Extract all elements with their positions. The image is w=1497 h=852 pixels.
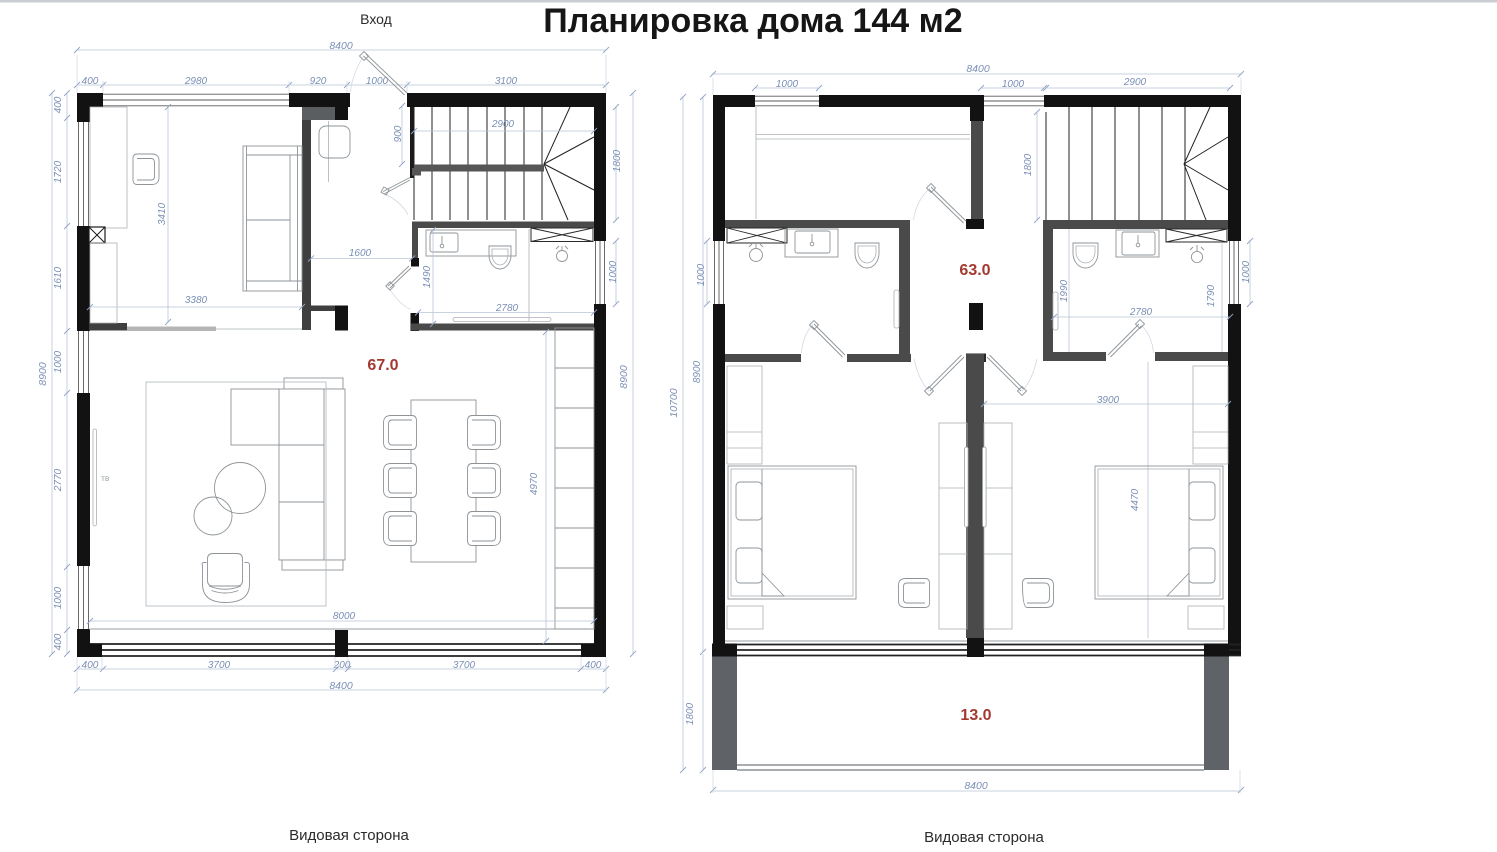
svg-text:8900: 8900: [618, 365, 630, 389]
svg-text:920: 920: [310, 76, 327, 87]
svg-text:1000: 1000: [696, 263, 707, 286]
svg-text:1000: 1000: [1241, 260, 1252, 283]
svg-text:3700: 3700: [453, 660, 476, 671]
svg-text:1000: 1000: [366, 76, 389, 87]
svg-text:1000: 1000: [776, 79, 799, 90]
svg-text:1800: 1800: [612, 149, 623, 172]
svg-text:Планировка дома 144 м2: Планировка дома 144 м2: [543, 2, 962, 40]
svg-text:400: 400: [53, 96, 64, 113]
svg-text:1000: 1000: [53, 350, 64, 373]
svg-text:1990: 1990: [1059, 279, 1070, 302]
svg-text:2980: 2980: [184, 76, 208, 87]
svg-text:400: 400: [82, 76, 99, 87]
svg-text:ТВ: ТВ: [101, 476, 109, 483]
svg-text:8400: 8400: [329, 40, 353, 52]
svg-text:1790: 1790: [1206, 284, 1217, 307]
svg-text:8400: 8400: [964, 780, 988, 792]
svg-text:4470: 4470: [1130, 488, 1141, 511]
svg-text:2900: 2900: [1123, 77, 1147, 88]
svg-text:63.0: 63.0: [959, 262, 990, 279]
svg-text:2900: 2900: [491, 119, 515, 130]
svg-text:13.0: 13.0: [960, 707, 991, 724]
svg-text:Видовая сторона: Видовая сторона: [924, 829, 1044, 846]
svg-text:67.0: 67.0: [367, 357, 398, 374]
svg-text:8900: 8900: [692, 360, 703, 383]
svg-text:400: 400: [53, 633, 64, 650]
svg-text:400: 400: [82, 660, 99, 671]
svg-text:1000: 1000: [53, 586, 64, 609]
svg-text:1610: 1610: [53, 266, 64, 289]
svg-text:1490: 1490: [422, 265, 433, 288]
svg-text:1000: 1000: [608, 260, 619, 283]
svg-text:1600: 1600: [349, 248, 372, 259]
svg-text:2780: 2780: [1129, 307, 1153, 318]
svg-text:1800: 1800: [685, 702, 696, 725]
svg-text:3380: 3380: [185, 295, 208, 306]
svg-text:8400: 8400: [966, 63, 990, 75]
svg-text:2770: 2770: [53, 468, 64, 492]
svg-text:1720: 1720: [53, 160, 64, 183]
svg-text:1000: 1000: [1002, 79, 1025, 90]
svg-text:10700: 10700: [668, 388, 680, 417]
svg-text:8400: 8400: [329, 680, 353, 692]
svg-text:8900: 8900: [37, 362, 49, 386]
svg-text:3100: 3100: [495, 76, 518, 87]
svg-text:Видовая сторона: Видовая сторона: [289, 827, 409, 844]
svg-text:4970: 4970: [529, 472, 540, 495]
svg-text:900: 900: [393, 125, 404, 142]
svg-text:3900: 3900: [1097, 395, 1120, 406]
svg-text:1800: 1800: [1023, 153, 1034, 176]
svg-text:Вход: Вход: [360, 11, 392, 27]
svg-text:8000: 8000: [333, 611, 356, 622]
svg-text:2780: 2780: [495, 303, 519, 314]
svg-text:3410: 3410: [157, 202, 168, 225]
svg-text:3700: 3700: [208, 660, 231, 671]
svg-text:400: 400: [585, 660, 602, 671]
